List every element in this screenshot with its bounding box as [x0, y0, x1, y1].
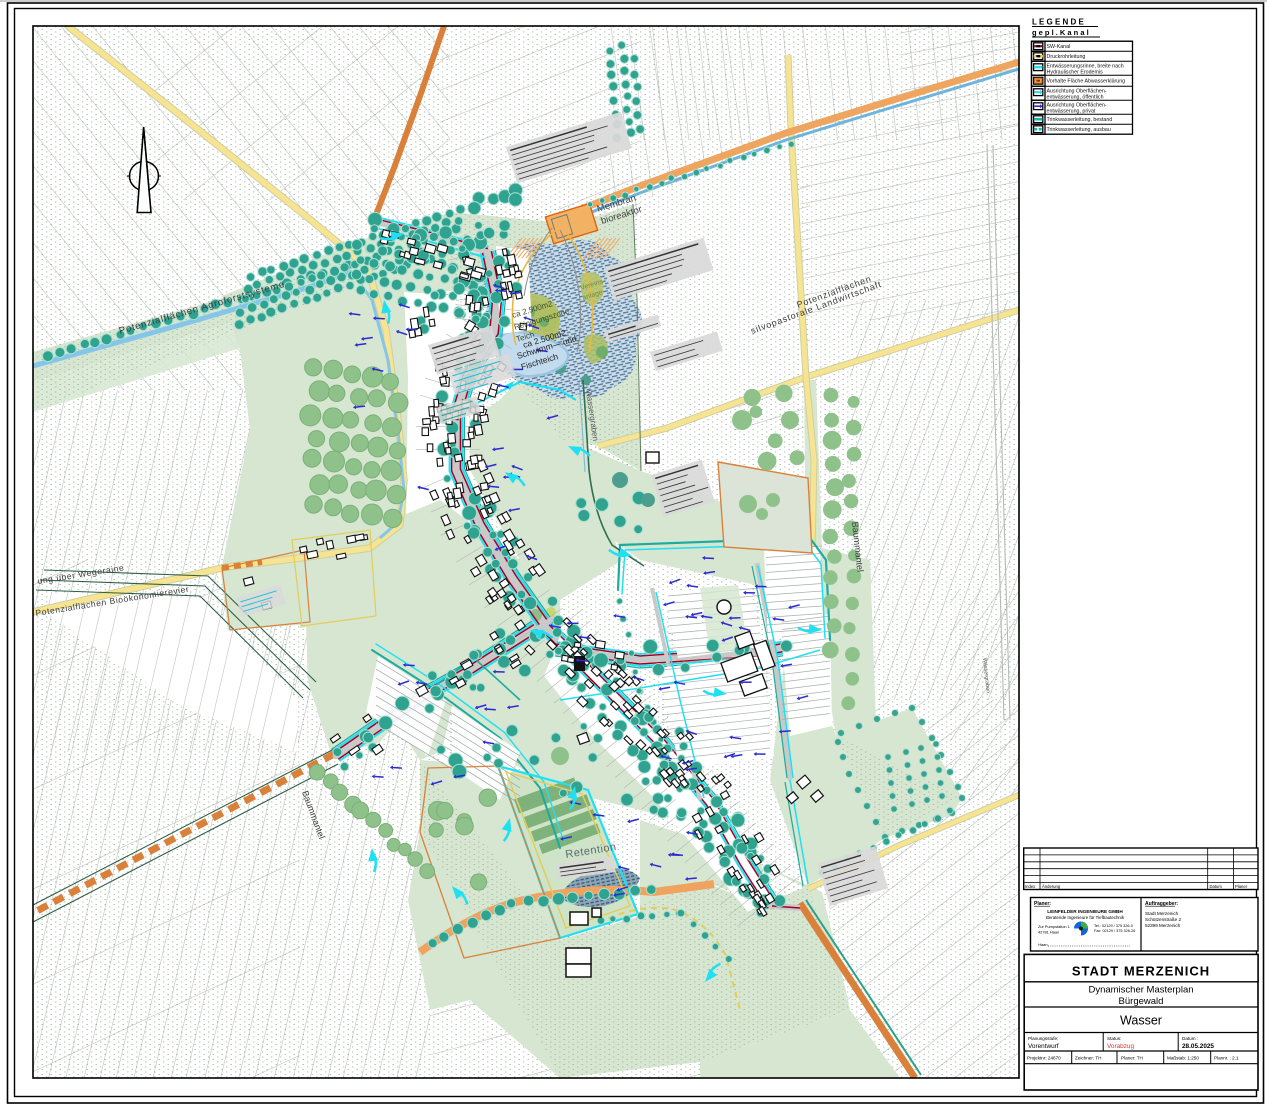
svg-text:Trinkwasserleitung, ausbau: Trinkwasserleitung, ausbau [1047, 127, 1111, 133]
svg-text:Plannr. : 2.1: Plannr. : 2.1 [1214, 1056, 1239, 1061]
svg-text:SW-Kanal: SW-Kanal [1047, 44, 1071, 50]
svg-text:STADT MERZENICH: STADT MERZENICH [1072, 964, 1210, 979]
svg-text:Trinkwasserleitung, bestand: Trinkwasserleitung, bestand [1047, 117, 1113, 123]
svg-text:52399 Merzenich: 52399 Merzenich [1145, 923, 1181, 928]
svg-text:Index: Index [1025, 884, 1036, 889]
svg-text:Fax: 02129 / 375 326-26: Fax: 02129 / 375 326-26 [1094, 929, 1135, 933]
svg-text:Schützenstraße 2: Schützenstraße 2 [1145, 917, 1181, 922]
svg-text:Zur Pumpstation 1: Zur Pumpstation 1 [1038, 924, 1070, 929]
svg-text:Beratende Ingenieure für Tiefb: Beratende Ingenieure für Tiefbautechnik [1046, 915, 1125, 920]
svg-text:Bürgewald: Bürgewald [1119, 996, 1164, 1007]
svg-text:28.05.2025: 28.05.2025 [1182, 1043, 1214, 1050]
svg-text:LEINFELDER INGENIEURE GMBH: LEINFELDER INGENIEURE GMBH [1047, 909, 1123, 914]
svg-text:Dynamischer Masterplan: Dynamischer Masterplan [1088, 985, 1193, 996]
svg-text:42781 Haan: 42781 Haan [1038, 930, 1059, 935]
svg-text:Planer: TH: Planer: TH [1121, 1056, 1143, 1061]
svg-text:Status:: Status: [1107, 1036, 1121, 1041]
svg-text:Planungsstufe:: Planungsstufe: [1028, 1036, 1058, 1041]
svg-text:g e p l . K a n a l: g e p l . K a n a l [1032, 28, 1089, 37]
svg-text:Vorhalte Fläche Abwasserklärun: Vorhalte Fläche Abwasserklärung [1047, 79, 1126, 85]
svg-text:L E G E N D E: L E G E N D E [1032, 18, 1085, 27]
svg-text:Stadt Merzenich: Stadt Merzenich [1145, 911, 1179, 916]
svg-text:Hydraulischer Erodemis: Hydraulischer Erodemis [1047, 69, 1104, 75]
svg-text:entwässerung, privat: entwässerung, privat [1047, 108, 1096, 114]
svg-text:Projektnr: 24670: Projektnr: 24670 [1027, 1056, 1061, 1061]
svg-text:Vorentwurf: Vorentwurf [1028, 1043, 1059, 1050]
svg-text:Wasser: Wasser [1120, 1014, 1162, 1028]
svg-text:entwässerung, öffentlich: entwässerung, öffentlich [1047, 94, 1104, 100]
svg-text:Druckrohrleitung: Druckrohrleitung [1047, 54, 1086, 60]
svg-text:Datum: Datum [1210, 884, 1223, 889]
svg-text:Vorabzug: Vorabzug [1107, 1043, 1134, 1050]
svg-text:Haan,: Haan, [1038, 942, 1049, 947]
svg-text:Änderung: Änderung [1042, 884, 1061, 889]
svg-text:Datum :: Datum : [1182, 1036, 1198, 1041]
svg-text:Planer: Planer [1235, 884, 1248, 889]
svg-text:Tel.: 02129 / 375 326-0: Tel.: 02129 / 375 326-0 [1094, 924, 1133, 928]
svg-text:Zeichner: TH: Zeichner: TH [1075, 1056, 1101, 1061]
svg-text:Maßstab: 1:250: Maßstab: 1:250 [1167, 1056, 1199, 1061]
